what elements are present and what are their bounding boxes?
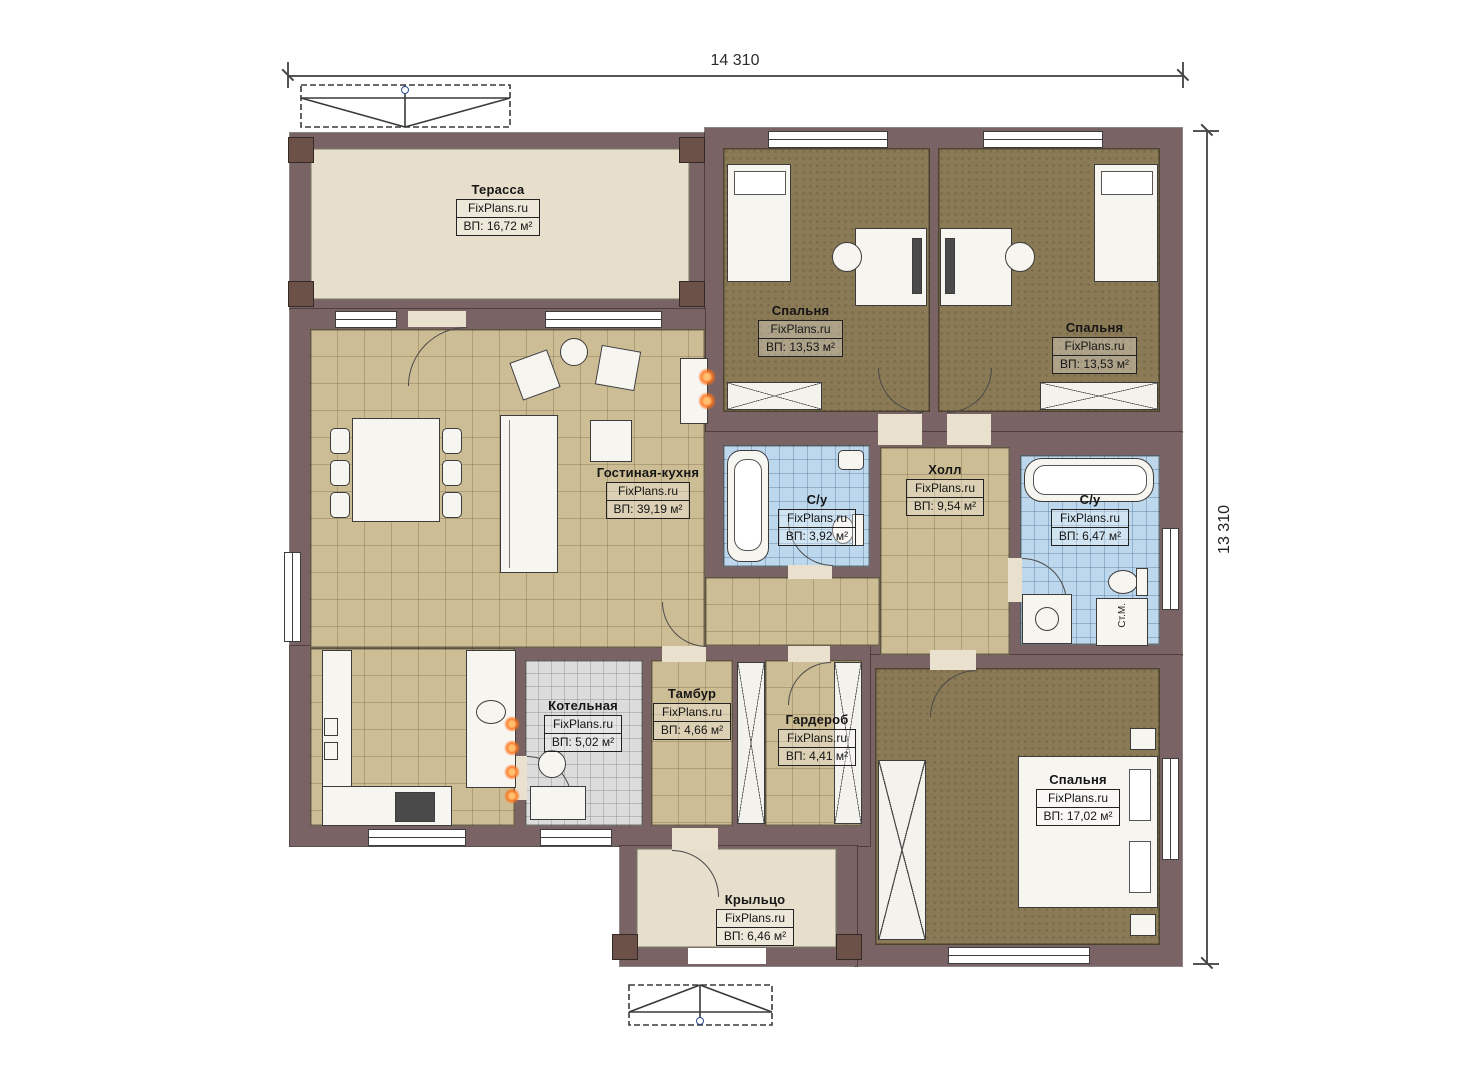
floor-corridor	[705, 577, 880, 646]
room-name: Котельная	[518, 698, 648, 713]
canopy-porch	[628, 984, 775, 1040]
room-name: С/у	[1028, 492, 1152, 507]
room-name: Спальня	[738, 303, 863, 318]
sofa	[500, 415, 558, 573]
door-bath-small	[788, 565, 832, 579]
window	[768, 131, 888, 148]
room-area: ВП: 16,72 м²	[457, 217, 540, 235]
room-label-porch: Крыльцо FixPlans.ruВП: 6,46 м²	[690, 892, 820, 946]
coffee-table	[590, 420, 632, 462]
dining-table	[352, 418, 440, 522]
dimension-height-label: 13 310	[1216, 505, 1234, 554]
room-area: ВП: 13,53 м²	[1053, 355, 1136, 373]
room-name: Спальня	[1032, 320, 1157, 335]
brand-text: FixPlans.ru	[779, 730, 855, 747]
bathtub-basin	[734, 459, 762, 551]
side-table	[560, 338, 588, 366]
brand-text: FixPlans.ru	[545, 716, 621, 733]
porch-entry-opening	[688, 948, 766, 964]
brand-text: FixPlans.ru	[717, 910, 793, 927]
chair	[330, 492, 350, 518]
terrace-post	[288, 281, 314, 307]
room-label-bedroom-right: Спальня FixPlans.ruВП: 13,53 м²	[1032, 320, 1157, 374]
room-label-living-kitchen: Гостиная-кухня FixPlans.ruВП: 39,19 м²	[568, 465, 728, 519]
window	[335, 311, 397, 328]
window	[545, 311, 662, 328]
dimension-line-top	[287, 75, 1183, 77]
brand-text: FixPlans.ru	[654, 704, 730, 721]
window	[1162, 528, 1179, 610]
brand-text: FixPlans.ru	[1052, 510, 1128, 527]
shower-drain	[1035, 607, 1059, 631]
door-wardrobe	[788, 646, 830, 662]
dimension-width-label: 14 310	[660, 52, 810, 70]
fire-glow	[698, 392, 716, 410]
door-terrace	[408, 311, 466, 327]
room-area: ВП: 17,02 м²	[1037, 807, 1120, 825]
room-label-boiler: Котельная FixPlans.ruВП: 5,02 м²	[518, 698, 648, 752]
wardrobe-cabinet	[727, 382, 822, 410]
room-area: ВП: 5,02 м²	[545, 733, 621, 751]
floor-tambur	[651, 660, 733, 826]
kitchen-sink	[476, 700, 506, 724]
monitor	[912, 238, 922, 294]
window	[948, 947, 1090, 964]
brand-text: FixPlans.ru	[907, 480, 983, 497]
room-label-terrace: Терасса FixPlans.ruВП: 16,72 м²	[428, 182, 568, 236]
window	[540, 829, 612, 846]
shower	[1022, 594, 1072, 644]
pillow	[1101, 171, 1153, 195]
boiler-tank	[538, 750, 566, 778]
window	[368, 829, 466, 846]
pillow	[734, 171, 786, 195]
bathtub-basin	[1033, 465, 1147, 495]
room-area: ВП: 6,47 м²	[1052, 527, 1128, 545]
room-name: Спальня	[1008, 772, 1148, 787]
room-label-bath-small: С/у FixPlans.ruВП: 3,92 м²	[766, 492, 868, 546]
brand-text: FixPlans.ru	[607, 483, 690, 500]
room-name: Крыльцо	[690, 892, 820, 907]
door-bath-right	[1008, 558, 1022, 602]
washing-machine-label: Ст.М.	[1117, 603, 1128, 628]
chair	[442, 428, 462, 454]
dimension-line-right	[1206, 130, 1208, 965]
terrace-post	[679, 137, 705, 163]
burner-glow	[504, 788, 520, 804]
closet	[878, 760, 926, 940]
bed	[1094, 164, 1158, 282]
room-label-tambur: Тамбур FixPlans.ruВП: 4,66 м²	[644, 686, 740, 740]
chair	[442, 460, 462, 486]
brand-text: FixPlans.ru	[1037, 790, 1120, 807]
fire-glow	[698, 368, 716, 386]
room-label-bath-right: С/у FixPlans.ruВП: 6,47 м²	[1028, 492, 1152, 546]
brand-text: FixPlans.ru	[779, 510, 855, 527]
toilet	[1108, 570, 1138, 594]
desk-chair	[832, 242, 862, 272]
brand-text: FixPlans.ru	[457, 200, 540, 217]
bed	[727, 164, 791, 282]
window	[983, 131, 1103, 148]
room-area: ВП: 13,53 м²	[759, 338, 842, 356]
window	[1162, 758, 1179, 860]
nightstand	[1130, 914, 1156, 936]
terrace-post	[679, 281, 705, 307]
room-label-bedroom-left: Спальня FixPlans.ruВП: 13,53 м²	[738, 303, 863, 357]
sink	[838, 450, 864, 470]
room-area: ВП: 3,92 м²	[779, 527, 855, 545]
room-area: ВП: 6,46 м²	[717, 927, 793, 945]
nightstand	[1130, 728, 1156, 750]
appliance-panel	[324, 742, 338, 760]
door-bedroom-left	[878, 414, 922, 445]
room-label-hall: Холл FixPlans.ruВП: 9,54 м²	[878, 462, 1012, 516]
sofa-back-line	[509, 420, 510, 568]
room-area: ВП: 4,41 м²	[779, 747, 855, 765]
chair	[330, 428, 350, 454]
monitor	[945, 238, 955, 294]
room-name: Гардероб	[762, 712, 872, 727]
chair	[442, 492, 462, 518]
boiler-unit	[530, 786, 586, 820]
terrace-post	[288, 137, 314, 163]
appliance-panel	[324, 718, 338, 736]
pillow	[1129, 841, 1151, 893]
closet	[737, 662, 765, 824]
room-area: ВП: 39,19 м²	[607, 500, 690, 518]
room-area: ВП: 9,54 м²	[907, 497, 983, 515]
window	[284, 552, 301, 642]
chair	[330, 460, 350, 486]
toilet-tank	[1136, 568, 1148, 596]
kitchen-stove-oven	[395, 792, 435, 822]
porch-post	[612, 934, 638, 960]
room-name: Терасса	[428, 182, 568, 197]
brand-text: FixPlans.ru	[759, 321, 842, 338]
brand-text: FixPlans.ru	[1053, 338, 1136, 355]
bathtub	[727, 450, 769, 562]
room-name: Гостиная-кухня	[568, 465, 728, 480]
room-name: Тамбур	[644, 686, 740, 701]
door-bedroom-bottom	[930, 650, 976, 670]
room-label-bedroom-bottom: Спальня FixPlans.ruВП: 17,02 м²	[1008, 772, 1148, 826]
armchair	[595, 345, 641, 391]
washing-machine: Ст.М.	[1096, 598, 1148, 646]
room-name: Холл	[878, 462, 1012, 477]
room-label-wardrobe: Гардероб FixPlans.ruВП: 4,41 м²	[762, 712, 872, 766]
desk-chair	[1005, 242, 1035, 272]
door-bedroom-right	[947, 414, 991, 445]
room-name: С/у	[766, 492, 868, 507]
floor-plan: 14 310 13 310	[0, 0, 1473, 1080]
room-area: ВП: 4,66 м²	[654, 721, 730, 739]
porch-post	[836, 934, 862, 960]
burner-glow	[504, 764, 520, 780]
door-living-tambur	[662, 646, 706, 662]
door-tambur-porch	[672, 828, 718, 850]
wardrobe-cabinet	[1040, 382, 1158, 410]
